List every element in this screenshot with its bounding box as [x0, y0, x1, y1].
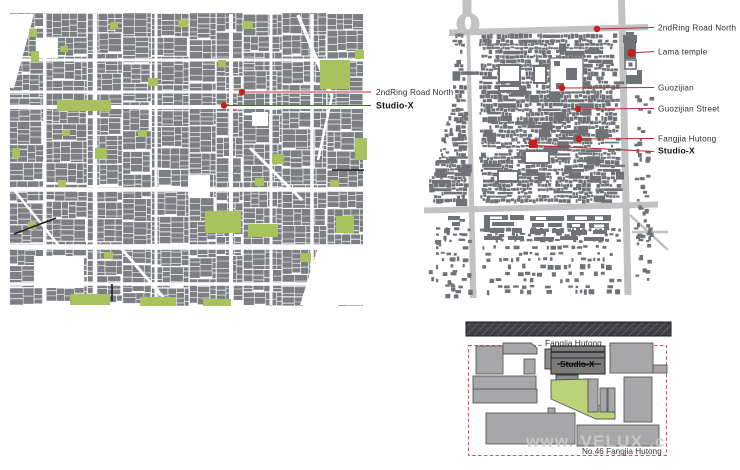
svg-text:Studio-X: Studio-X	[658, 146, 695, 156]
svg-text:Lama temple: Lama temple	[658, 48, 708, 57]
svg-text:Studio-X: Studio-X	[376, 101, 414, 111]
svg-text:No.46 Fangjia Hutong: No.46 Fangjia Hutong	[582, 447, 662, 456]
svg-text:Guozijian: Guozijian	[658, 84, 694, 93]
svg-text:Guozijian Street: Guozijian Street	[658, 105, 720, 114]
svg-text:2ndRing Road North: 2ndRing Road North	[376, 88, 454, 97]
svg-text:Fangjia Hutong: Fangjia Hutong	[658, 135, 717, 144]
svg-text:2ndRing Road North: 2ndRing Road North	[658, 24, 736, 33]
